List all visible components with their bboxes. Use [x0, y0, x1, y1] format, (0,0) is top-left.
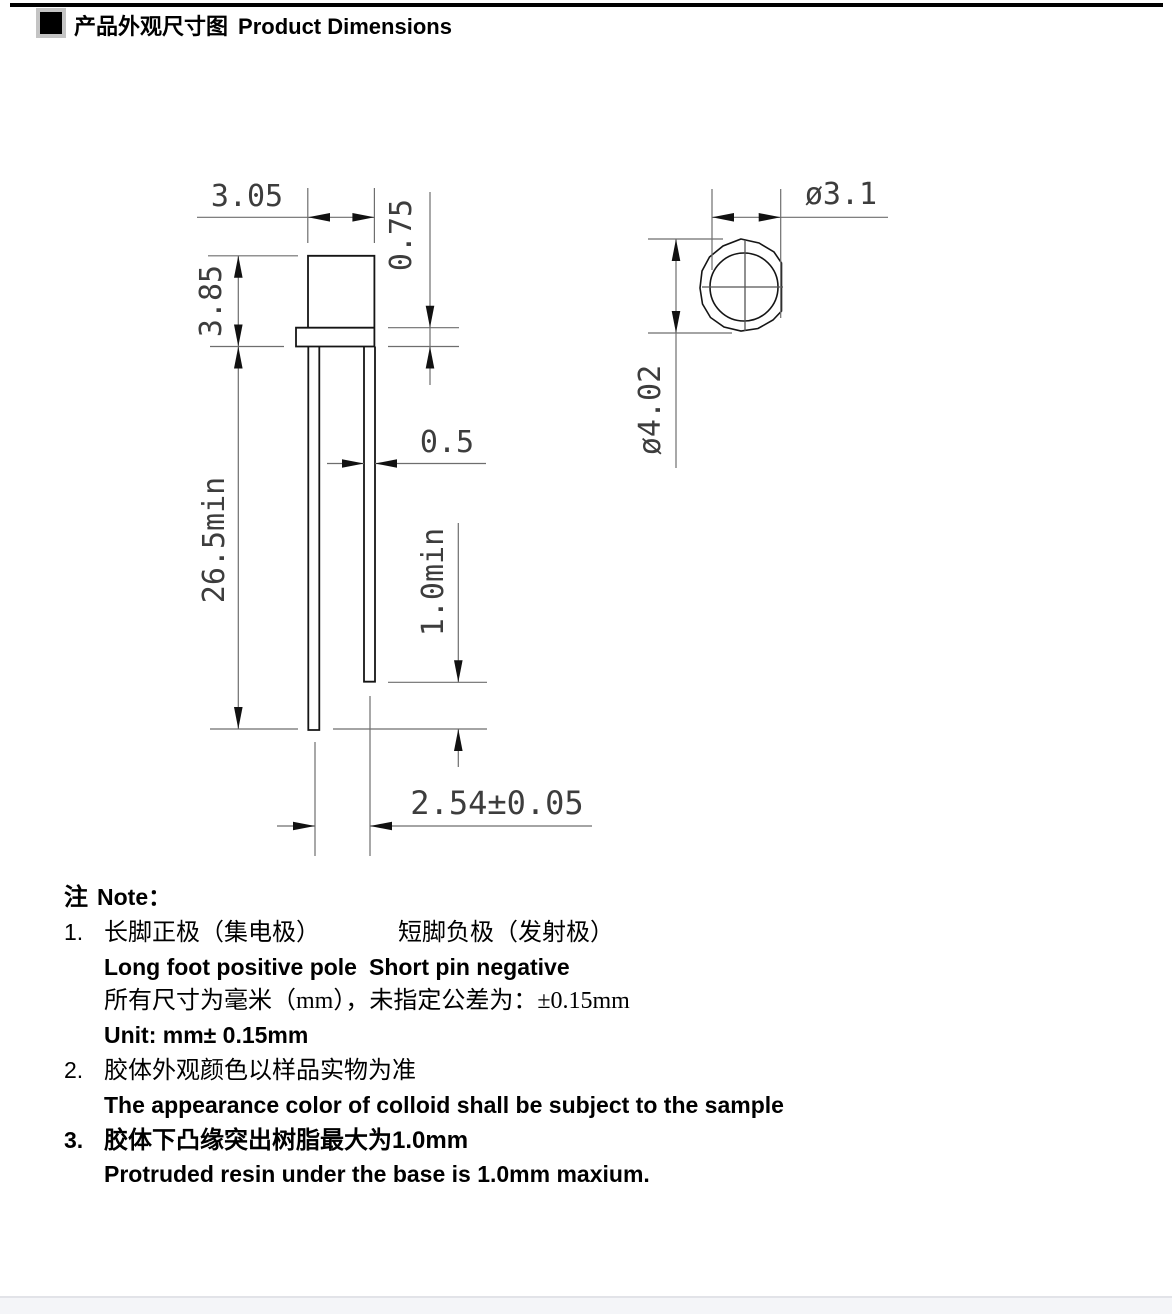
top-view: ø3.1 ø4.02: [633, 177, 888, 468]
dim-label-lens-diameter: ø3.1: [805, 177, 877, 212]
note-1-zh: 1.长脚正极（集电极）短脚负极（发射极）: [64, 917, 924, 952]
front-extension-lines: [197, 188, 592, 856]
note-3-number: 3.: [64, 1125, 104, 1156]
note-2-en: The appearance color of colloid shall be…: [64, 1090, 924, 1125]
top-extension-lines: [648, 189, 888, 468]
note-1-number: 1.: [64, 917, 104, 948]
dim-label-body-width: 3.05: [211, 179, 283, 214]
dim-label-lead-tip-offset: 1.0min: [416, 528, 451, 636]
note-2-number: 2.: [64, 1055, 104, 1086]
note-1-en-long-foot: Long foot positive pole: [104, 954, 357, 980]
note-3-en: Protruded resin under the base is 1.0mm …: [64, 1159, 924, 1194]
notes-heading-zh: 注: [64, 885, 88, 911]
note-1-zh-long-foot: 长脚正极（集电极）: [104, 920, 320, 946]
note-1-en-short-pin: Short pin negative: [369, 954, 570, 980]
led-leads-outline: [308, 347, 375, 731]
note-1-zh-short-pin: 短脚负极（发射极）: [398, 920, 614, 946]
notes-section: 注Note： 1.长脚正极（集电极）短脚负极（发射极） Long foot po…: [64, 882, 924, 1194]
dim-label-flange-diameter: ø4.02: [633, 365, 668, 455]
note-1-unit-zh: 所有尺寸为毫米（mm），未指定公差为：±0.15mm: [64, 986, 924, 1020]
front-view: 3.05 0.75 3.85 26.5min 0.5 1.0min 2.54±0…: [194, 179, 592, 856]
notes-heading: 注Note：: [64, 882, 924, 917]
front-arrowheads: [234, 213, 463, 830]
note-2-zh: 2.胶体外观颜色以样品实物为准: [64, 1055, 924, 1090]
dimension-drawing: 3.05 0.75 3.85 26.5min 0.5 1.0min 2.54±0…: [0, 0, 1172, 880]
dim-label-lead-pitch: 2.54±0.05: [410, 784, 583, 822]
dim-label-body-height: 3.85: [194, 265, 229, 337]
note-1-en: Long foot positive poleShort pin negativ…: [64, 952, 924, 987]
dim-label-flange-thickness: 0.75: [384, 199, 419, 271]
dim-label-lead-width: 0.5: [420, 425, 474, 460]
notes-heading-en: Note：: [97, 884, 171, 910]
led-body-outline: [296, 256, 374, 347]
note-1-unit-en: Unit: mm± 0.15mm: [64, 1020, 924, 1055]
dim-label-lead-length: 26.5min: [197, 477, 232, 603]
note-3-zh: 3.胶体下凸缘突出树脂最大为1.0mm: [64, 1125, 924, 1160]
footer-bar: [0, 1296, 1172, 1314]
